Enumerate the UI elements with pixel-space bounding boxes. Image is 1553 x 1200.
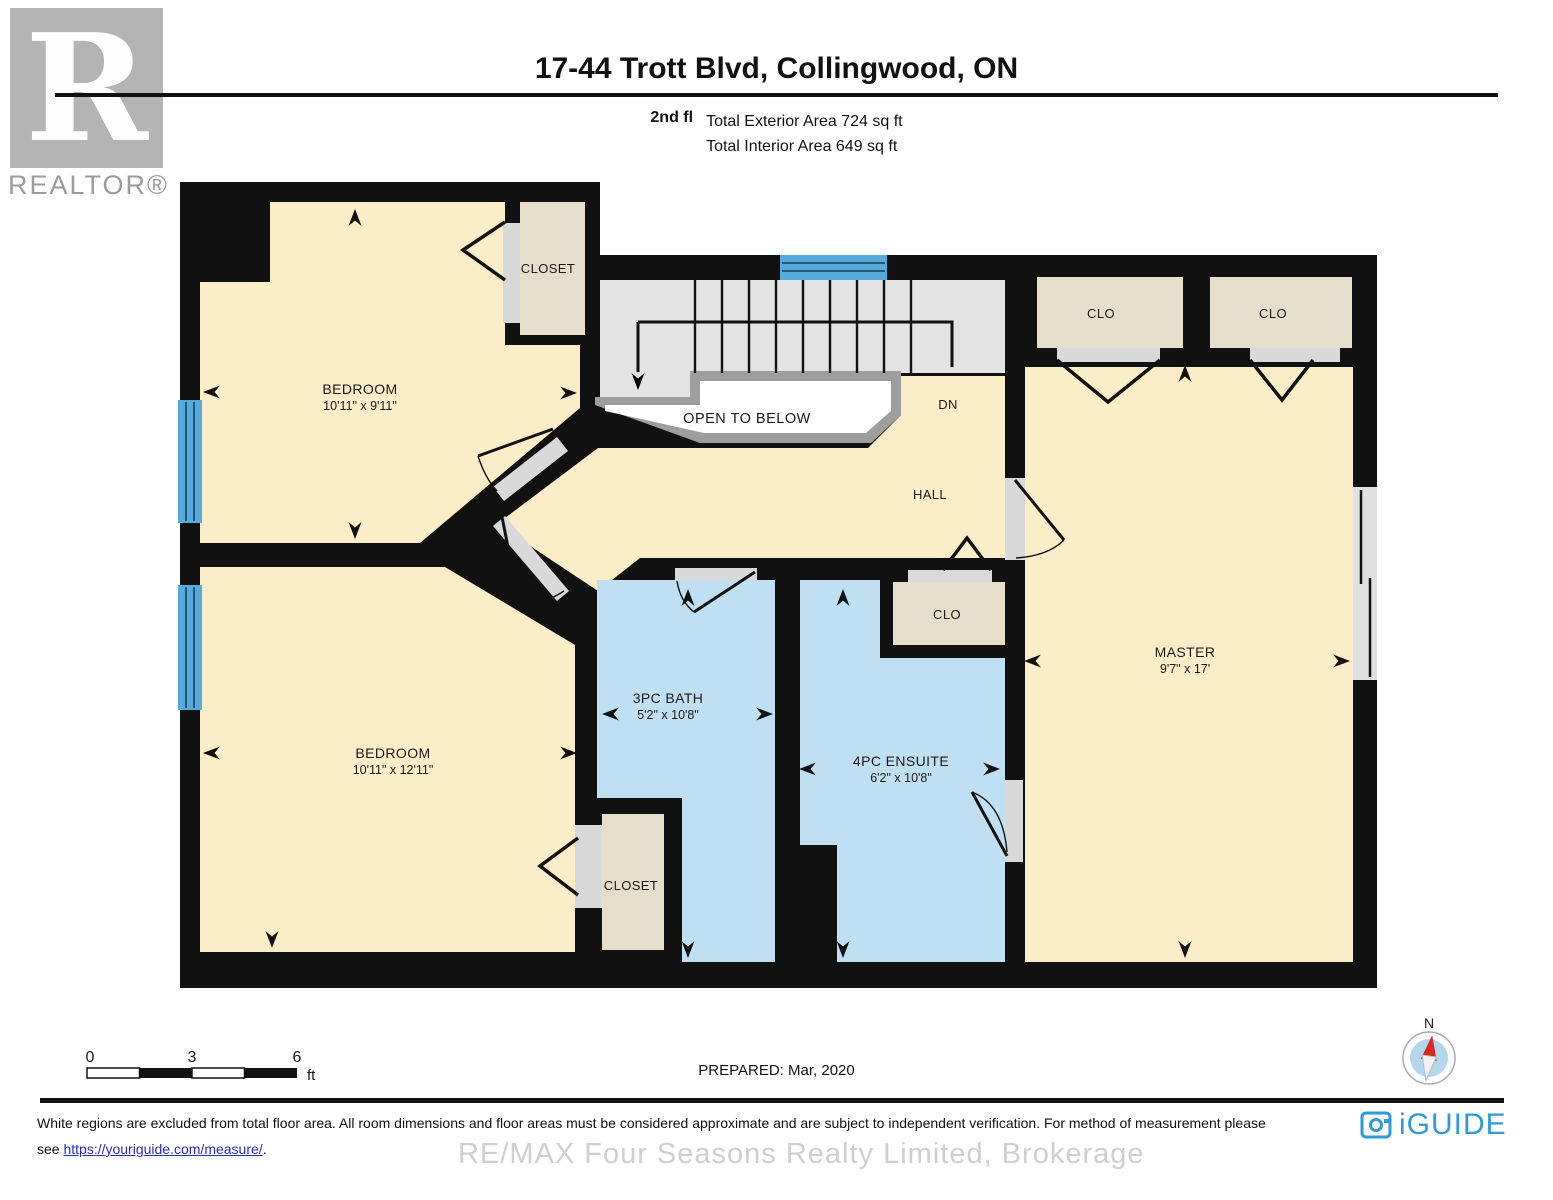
closet-bottom-label: CLOSET xyxy=(604,878,658,893)
ensuite-label: 4PC ENSUITE xyxy=(853,753,949,769)
bath-dims: 5'2" x 10'8" xyxy=(637,708,699,722)
disclaimer-line2-prefix: see xyxy=(37,1141,63,1157)
closet-top-label: CLOSET xyxy=(521,261,575,276)
door-jamb xyxy=(503,223,520,323)
measure-link[interactable]: https://youriguide.com/measure/ xyxy=(63,1141,262,1157)
clo-hall-label: CLO xyxy=(933,607,961,622)
iguide-camera-icon xyxy=(1360,1110,1394,1140)
door-jamb xyxy=(1057,348,1160,362)
clo-left-label: CLO xyxy=(1087,306,1115,321)
sliding-door-icon xyxy=(1353,487,1377,680)
hall-label: HALL xyxy=(913,487,947,502)
stairs-dn-label: DN xyxy=(938,397,958,412)
compass-north-label: N xyxy=(1424,1015,1434,1031)
window-icon xyxy=(178,585,202,710)
open-to-below-label: OPEN TO BELOW xyxy=(683,411,811,427)
clo-right-label: CLO xyxy=(1259,306,1287,321)
window-icon xyxy=(780,255,887,280)
bedroom2-label: BEDROOM xyxy=(355,745,430,761)
disclaimer-line1: White regions are excluded from total fl… xyxy=(37,1115,1266,1131)
door-jamb xyxy=(1250,348,1340,362)
bedroom1-label: BEDROOM xyxy=(322,381,397,397)
disclaimer-suffix: . xyxy=(263,1141,267,1157)
master-dims: 9'7" x 17' xyxy=(1160,662,1210,676)
prepared-date: PREPARED: Mar, 2020 xyxy=(0,1062,1553,1079)
door-jamb xyxy=(908,570,992,582)
footer-divider xyxy=(40,1098,1504,1103)
bedroom2-dims: 10'11" x 12'11" xyxy=(353,763,434,777)
door-jamb xyxy=(1005,780,1023,862)
iguide-logo: iGUIDE xyxy=(1360,1108,1507,1142)
bath-label: 3PC BATH xyxy=(633,690,704,706)
iguide-wordmark: iGUIDE xyxy=(1399,1108,1507,1142)
door-jamb xyxy=(575,825,602,908)
window-icon xyxy=(178,400,202,523)
floor-plan-drawing: BEDROOM 10'11" x 9'11" BEDROOM 10'11" x … xyxy=(0,0,1553,1200)
disclaimer-text: White regions are excluded from total fl… xyxy=(37,1110,1307,1162)
master-label: MASTER xyxy=(1155,644,1216,660)
floor-plan-page: R REALTOR® 17-44 Trott Blvd, Collingwood… xyxy=(0,0,1553,1200)
bedroom1-dims: 10'11" x 9'11" xyxy=(323,399,397,413)
ensuite-dims: 6'2" x 10'8" xyxy=(870,771,932,785)
